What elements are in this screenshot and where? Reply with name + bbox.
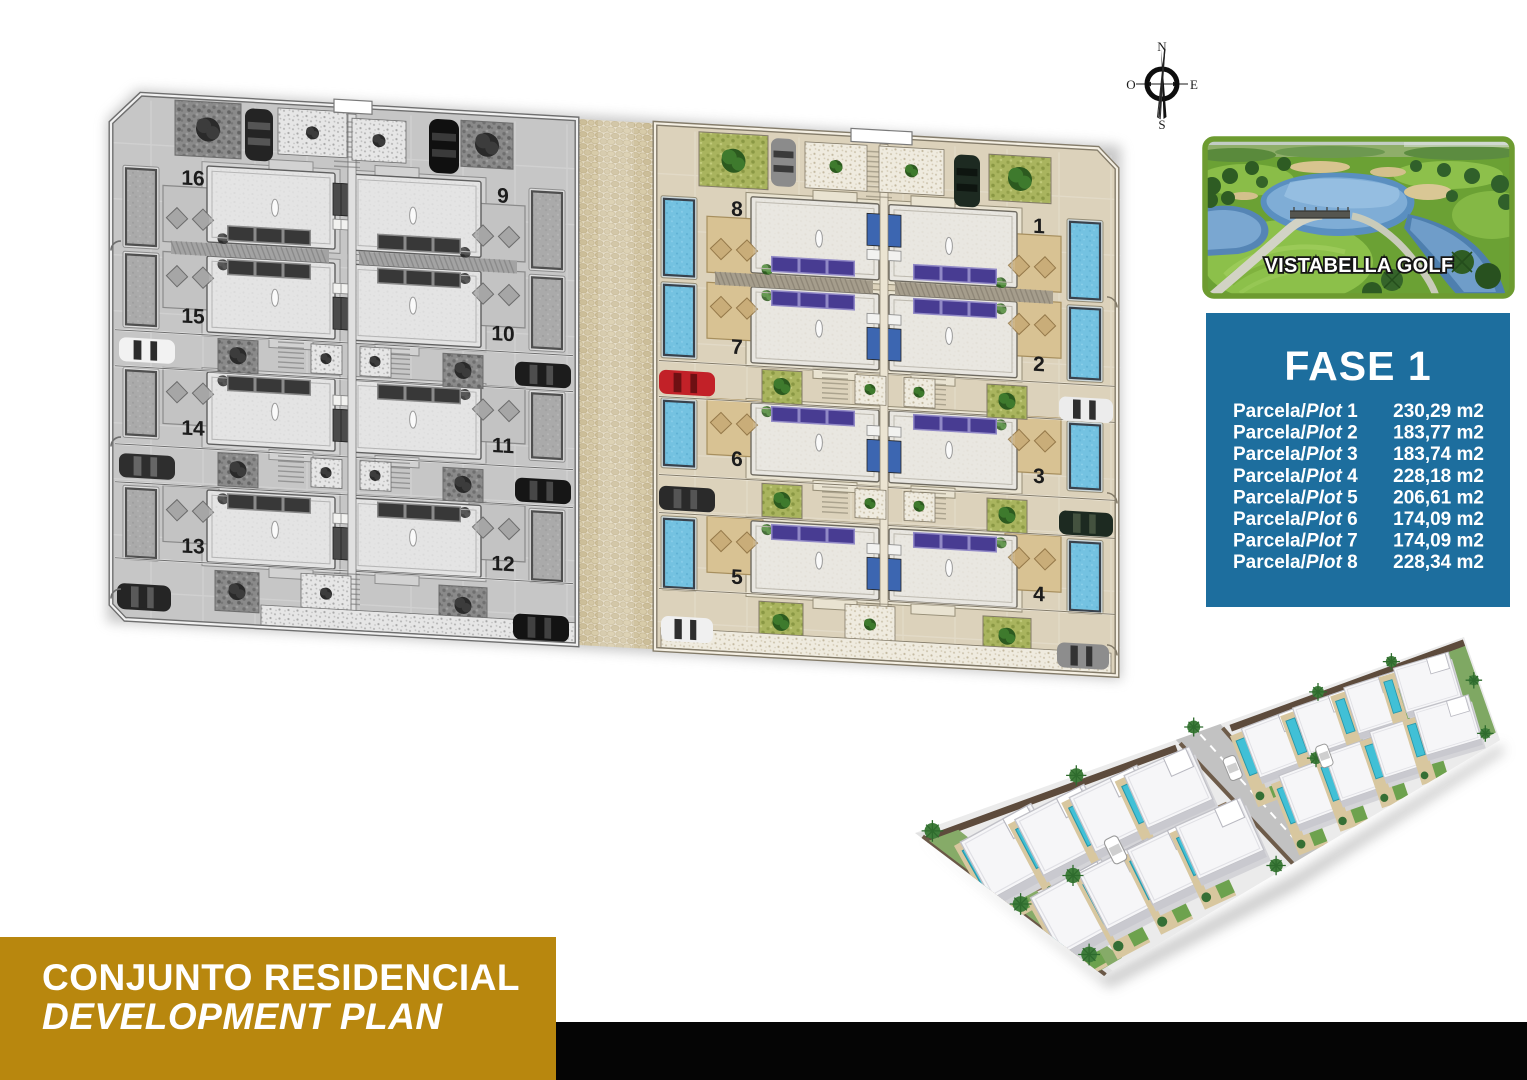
svg-text:228,34 m2: 228,34 m2 [1393,552,1484,573]
svg-text:230,29 m2: 230,29 m2 [1393,401,1484,422]
svg-text:14: 14 [181,416,205,440]
svg-text:FASE 1: FASE 1 [1284,343,1431,389]
svg-text:2: 2 [1033,353,1045,377]
svg-text:1: 1 [1033,215,1045,239]
svg-text:E: E [1190,77,1198,92]
svg-text:13: 13 [181,534,204,558]
svg-text:Parcela/Plot 3: Parcela/Plot 3 [1233,444,1358,465]
svg-text:5: 5 [731,566,743,590]
svg-text:Parcela/Plot 6: Parcela/Plot 6 [1233,509,1358,530]
svg-text:10: 10 [491,322,514,346]
svg-text:N: N [1157,39,1167,54]
svg-text:12: 12 [491,552,514,576]
svg-text:16: 16 [181,166,204,190]
svg-text:8: 8 [731,198,743,222]
svg-text:Parcela/Plot 5: Parcela/Plot 5 [1233,487,1358,508]
svg-text:Parcela/Plot 7: Parcela/Plot 7 [1233,531,1358,552]
svg-text:174,09 m2: 174,09 m2 [1393,509,1484,530]
svg-text:Parcela/Plot 8: Parcela/Plot 8 [1233,552,1358,573]
svg-text:7: 7 [731,336,743,360]
svg-text:9: 9 [497,184,509,208]
svg-text:228,18 m2: 228,18 m2 [1393,466,1484,487]
svg-text:11: 11 [492,434,515,458]
svg-text:Parcela/Plot 1: Parcela/Plot 1 [1233,401,1358,422]
svg-text:VISTABELLA GOLF: VISTABELLA GOLF [1265,255,1454,277]
svg-text:O: O [1126,77,1135,92]
svg-text:Parcela/Plot 4: Parcela/Plot 4 [1233,466,1358,487]
svg-text:4: 4 [1033,583,1045,607]
svg-text:3: 3 [1033,465,1045,489]
svg-text:6: 6 [731,448,743,472]
svg-text:174,09 m2: 174,09 m2 [1393,531,1484,552]
svg-text:Parcela/Plot 2: Parcela/Plot 2 [1233,423,1358,444]
svg-text:S: S [1158,117,1165,132]
svg-text:15: 15 [181,304,205,328]
svg-text:183,74 m2: 183,74 m2 [1393,444,1484,465]
svg-text:183,77 m2: 183,77 m2 [1393,423,1484,444]
svg-text:206,61 m2: 206,61 m2 [1393,487,1484,508]
